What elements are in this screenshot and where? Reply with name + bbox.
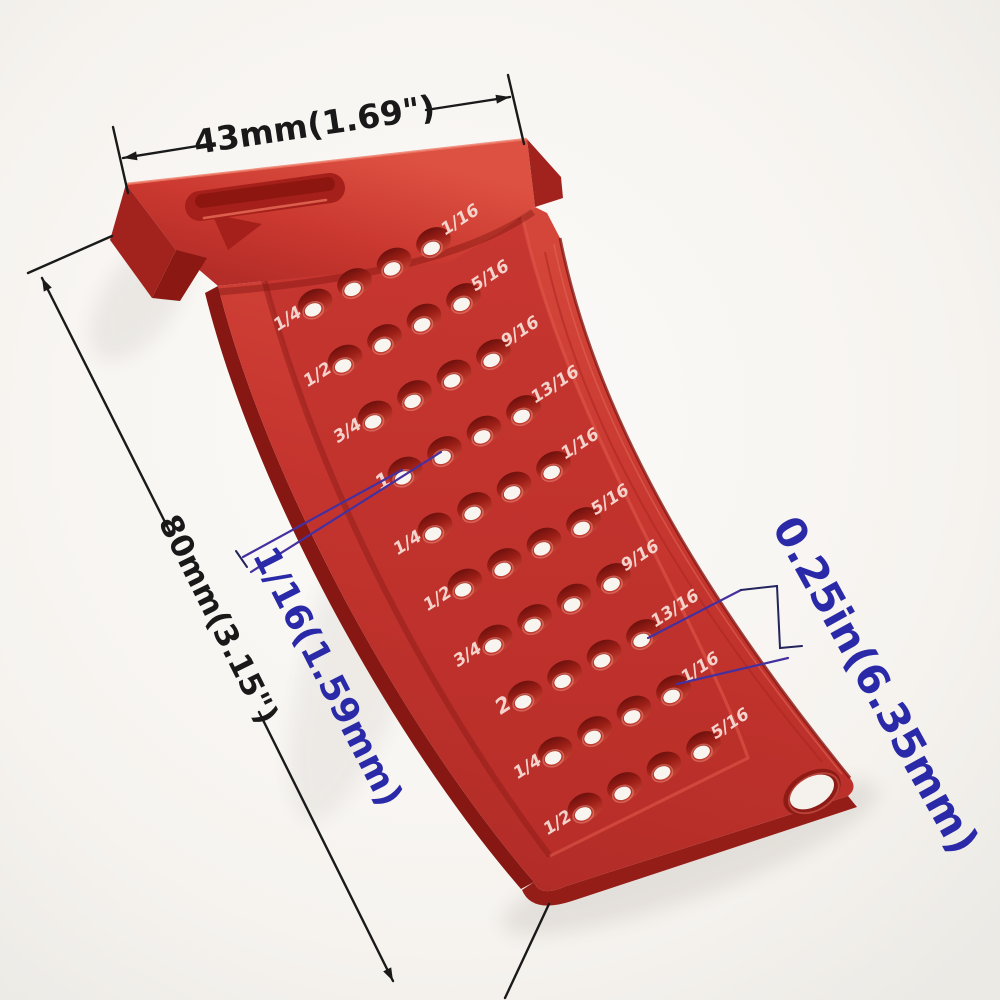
product-photo-t-square-marking-ruler: 1/41/161/25/163/49/16113/161/41/161/25/1… — [0, 0, 1000, 1000]
scene-svg: 1/41/161/25/163/49/16113/161/41/161/25/1… — [0, 0, 1000, 1000]
